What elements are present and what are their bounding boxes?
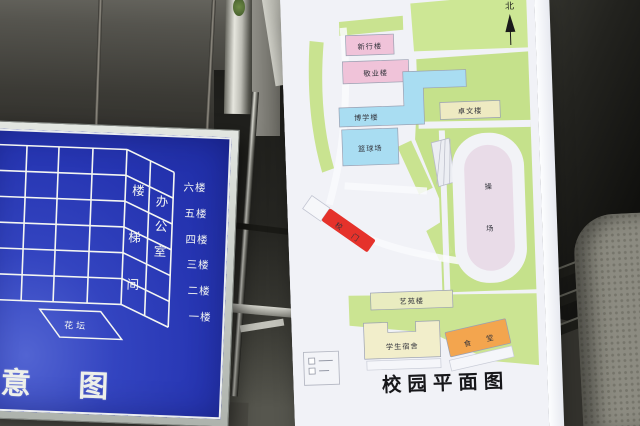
photo-scene: 楼 梯 间 办 公 室 六楼 五楼 四楼 三楼 二楼 一楼 花坛: [0, 0, 640, 426]
building-label: 新行楼: [357, 41, 382, 51]
stairwell-column: 楼 梯 间: [126, 183, 145, 292]
office-char: 办: [155, 194, 168, 209]
arts-building: 艺苑楼: [370, 290, 453, 310]
building-grid: [0, 144, 175, 327]
flower-bed: 花坛: [39, 309, 123, 339]
campus-map-drawing: 操 场 新行楼 敬业楼 博学楼 篮球场: [280, 0, 549, 426]
floor-label: 六楼: [183, 181, 206, 195]
building-top: 新行楼: [345, 34, 394, 56]
north-label: 北: [505, 1, 514, 11]
office-char: 室: [154, 244, 167, 259]
building-second: 敬业楼: [342, 60, 409, 84]
office-column: 办 公 室: [154, 194, 169, 259]
stair-char: 楼: [132, 183, 145, 198]
floor-labels: 六楼 五楼 四楼 三楼 二楼 一楼: [178, 181, 216, 324]
playground-label-char: 场: [486, 224, 495, 233]
basketball-court: 篮球场: [342, 128, 399, 166]
building-label: 卓文楼: [458, 106, 483, 116]
building-east: 卓文楼: [440, 100, 501, 119]
building-label: 敬业楼: [363, 68, 388, 78]
court-label: 篮球场: [358, 144, 383, 154]
floor-label: 四楼: [185, 233, 208, 247]
sign-caption: 意 图: [0, 358, 202, 410]
stair-char: 梯: [128, 231, 141, 245]
flower-bed-label: 花坛: [64, 319, 88, 331]
sports-field: 操 场: [451, 132, 528, 284]
building-label: 艺苑楼: [399, 296, 424, 306]
building-label: 博学楼: [354, 113, 379, 123]
floor-label: 三楼: [186, 258, 209, 272]
playground-label-char: 操: [485, 182, 494, 191]
dormitory-label: 学生宿舍: [386, 341, 419, 351]
floor-plan-sign: 楼 梯 间 办 公 室 六楼 五楼 四楼 三楼 二楼 一楼 花坛: [0, 120, 240, 426]
map-legend: [303, 351, 339, 385]
floor-label: 一楼: [188, 310, 211, 324]
campus-map-sign: 操 场 新行楼 敬业楼 博学楼 篮球场: [280, 0, 563, 426]
floor-label: 二楼: [187, 284, 210, 298]
concrete-pillar: [572, 212, 640, 426]
floor-label: 五楼: [184, 207, 207, 221]
office-char: 公: [155, 220, 169, 234]
stair-char: 间: [126, 278, 139, 292]
